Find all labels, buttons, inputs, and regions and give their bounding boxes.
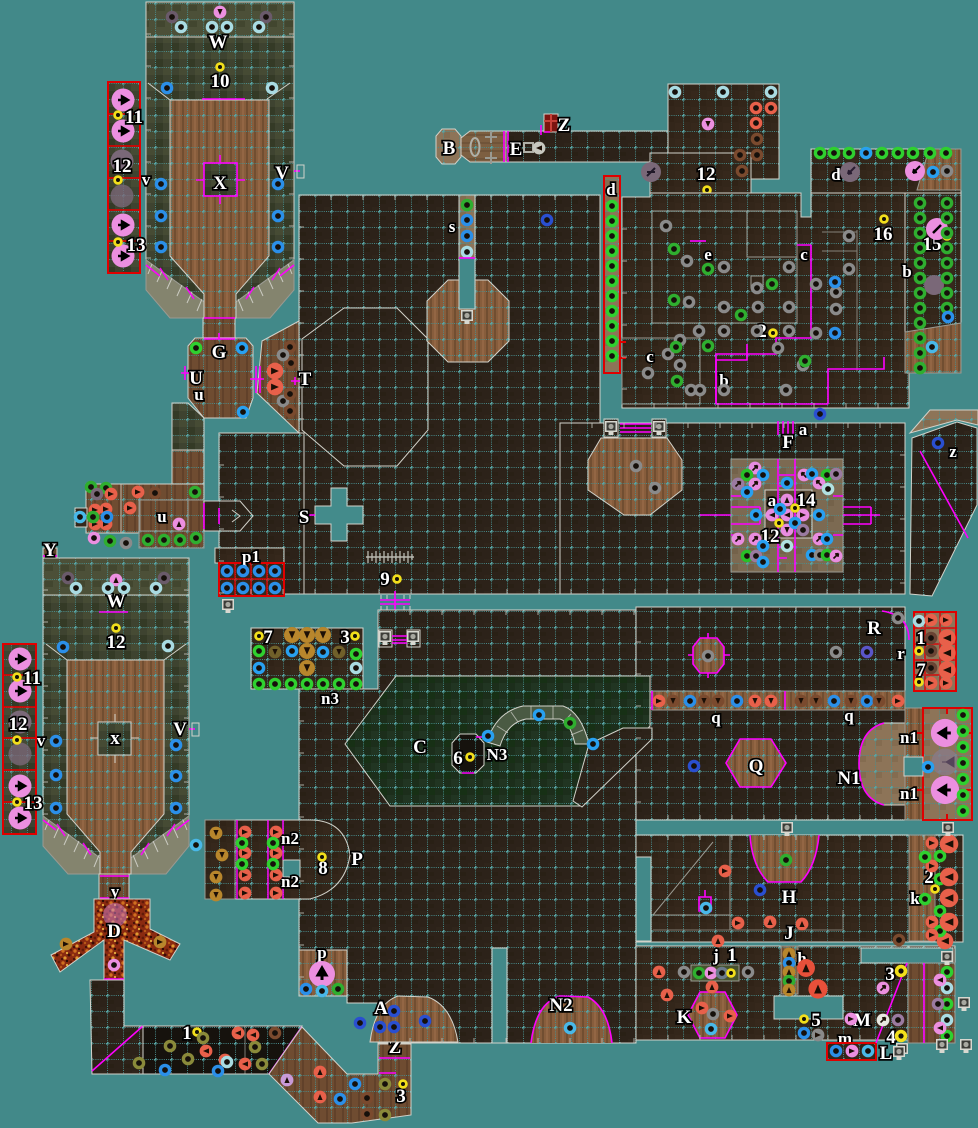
svg-text:X: X	[213, 173, 227, 194]
svg-text:b: b	[902, 262, 911, 281]
svg-text:n2: n2	[281, 872, 299, 891]
svg-text:v: v	[142, 170, 151, 189]
svg-text:4: 4	[886, 1027, 896, 1048]
svg-text:12: 12	[113, 156, 132, 177]
svg-text:9: 9	[380, 569, 390, 590]
svg-text:12: 12	[107, 632, 126, 653]
svg-text:H: H	[782, 887, 797, 908]
svg-text:n1: n1	[900, 784, 918, 803]
svg-text:q: q	[844, 706, 854, 725]
svg-text:J: J	[784, 923, 794, 944]
svg-text:A: A	[374, 998, 388, 1019]
svg-text:13: 13	[24, 793, 43, 814]
svg-text:N2: N2	[549, 995, 572, 1016]
svg-text:5: 5	[811, 1010, 821, 1031]
svg-text:12: 12	[697, 164, 716, 185]
svg-text:x: x	[110, 728, 120, 749]
svg-text:1: 1	[916, 628, 926, 649]
svg-text:16: 16	[874, 224, 893, 245]
svg-text:6: 6	[453, 748, 463, 769]
svg-text:13: 13	[127, 235, 146, 256]
svg-text:U: U	[189, 368, 203, 389]
svg-text:3: 3	[885, 964, 895, 985]
svg-text:p1: p1	[242, 547, 260, 566]
svg-text:N1: N1	[837, 768, 860, 789]
svg-text:P: P	[351, 849, 363, 870]
svg-text:N3: N3	[487, 745, 508, 764]
svg-text:d: d	[606, 180, 616, 199]
svg-text:n3: n3	[321, 689, 339, 708]
svg-text:V: V	[173, 719, 187, 740]
svg-text:n1: n1	[900, 728, 918, 747]
svg-text:c: c	[646, 347, 654, 366]
svg-text:C: C	[413, 737, 427, 758]
svg-text:c: c	[800, 245, 808, 264]
svg-text:1: 1	[182, 1023, 192, 1044]
svg-text:j: j	[712, 946, 719, 965]
svg-text:y: y	[111, 882, 120, 901]
svg-text:Z: Z	[558, 115, 571, 136]
svg-text:G: G	[212, 342, 227, 363]
svg-text:7: 7	[916, 660, 926, 681]
svg-text:S: S	[299, 507, 310, 528]
svg-text:11: 11	[125, 107, 143, 128]
svg-text:1: 1	[727, 945, 737, 966]
svg-text:v: v	[37, 731, 46, 750]
svg-text:e: e	[704, 245, 712, 264]
svg-text:d: d	[831, 165, 841, 184]
svg-text:B: B	[443, 138, 456, 159]
svg-text:n2: n2	[281, 829, 299, 848]
svg-text:F: F	[782, 432, 794, 453]
svg-text:s: s	[449, 217, 456, 236]
svg-text:7: 7	[263, 627, 273, 648]
svg-text:K: K	[677, 1007, 692, 1028]
svg-text:u: u	[157, 507, 166, 526]
svg-text:a: a	[799, 420, 808, 439]
svg-text:r: r	[897, 644, 905, 663]
svg-text:3: 3	[340, 627, 350, 648]
svg-text:z: z	[949, 442, 957, 461]
svg-text:12: 12	[9, 714, 28, 735]
svg-text:3: 3	[396, 1086, 406, 1107]
svg-text:W: W	[209, 32, 228, 53]
svg-text:p: p	[317, 943, 326, 962]
svg-text:Q: Q	[749, 756, 764, 777]
svg-text:10: 10	[211, 71, 230, 92]
svg-text:11: 11	[23, 668, 41, 689]
svg-text:D: D	[107, 921, 121, 942]
svg-text:q: q	[711, 708, 721, 727]
svg-text:R: R	[867, 618, 881, 639]
svg-text:E: E	[510, 139, 523, 160]
svg-text:Y: Y	[43, 540, 57, 561]
